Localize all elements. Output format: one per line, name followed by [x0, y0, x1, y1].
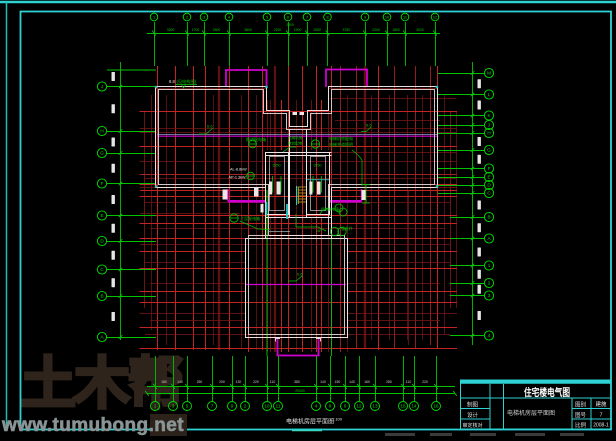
svg-text:16: 16	[433, 403, 439, 408]
svg-text:4: 4	[228, 15, 230, 19]
svg-text:2100: 2100	[274, 28, 282, 32]
svg-text:15: 15	[400, 403, 406, 408]
svg-text:6.6: 6.6	[366, 123, 372, 128]
svg-text:130: 130	[236, 380, 242, 384]
svg-text:G: G	[100, 150, 104, 155]
svg-text:b.6: b.6	[297, 272, 303, 277]
svg-text:2008-1: 2008-1	[593, 423, 609, 429]
svg-text:2: 2	[488, 280, 491, 285]
svg-text:建施: 建施	[595, 400, 607, 408]
svg-text:140: 140	[177, 380, 183, 384]
svg-text:2850: 2850	[314, 164, 322, 168]
svg-text:12: 12	[433, 15, 437, 19]
svg-text:住宅楼电气图: 住宅楼电气图	[524, 386, 570, 399]
svg-text:180: 180	[161, 380, 167, 384]
svg-text:3: 3	[203, 15, 205, 19]
svg-text:电梯机房层平面图: 电梯机房层平面图	[286, 418, 334, 426]
svg-text:14: 14	[411, 403, 417, 408]
svg-text:J: J	[488, 122, 490, 127]
svg-text:29400: 29400	[295, 389, 305, 393]
svg-text:1: 1	[488, 263, 491, 268]
svg-text:电梯机房: 电梯机房	[288, 135, 303, 140]
svg-text:280: 280	[386, 380, 392, 384]
svg-text:3: 3	[488, 293, 491, 298]
svg-text:220: 220	[253, 380, 259, 384]
svg-text:图别: 图别	[575, 401, 586, 409]
svg-text:140: 140	[320, 380, 326, 384]
svg-text:J: J	[101, 84, 103, 89]
svg-text:2400: 2400	[286, 23, 294, 27]
svg-text:250: 250	[197, 380, 203, 384]
svg-text:8: 8	[326, 15, 328, 19]
svg-text:E: E	[100, 213, 103, 218]
svg-text:L: L	[488, 92, 491, 97]
svg-text:AP-1 3kW: AP-1 3kW	[229, 176, 247, 180]
svg-text:3750: 3750	[342, 28, 350, 32]
svg-text:4: 4	[488, 333, 491, 338]
svg-text:2500: 2500	[213, 28, 221, 32]
svg-text:图号: 图号	[575, 411, 587, 419]
svg-text:2200: 2200	[372, 28, 380, 32]
svg-text:比例: 比例	[575, 421, 587, 429]
svg-text:(见结构图): (见结构图)	[177, 78, 197, 85]
svg-text:110: 110	[406, 380, 412, 384]
svg-text:电梯井道照明: 电梯井道照明	[329, 141, 353, 147]
svg-text:设计: 设计	[467, 411, 479, 419]
svg-text:1700: 1700	[192, 28, 200, 32]
svg-text:照明配电箱: 照明配电箱	[246, 136, 266, 142]
svg-text:6: 6	[287, 15, 289, 19]
svg-text:3800: 3800	[244, 28, 252, 32]
svg-text:8.8: 8.8	[169, 79, 175, 84]
svg-text:G: G	[487, 147, 491, 152]
svg-text:2: 2	[186, 15, 188, 19]
svg-text:140: 140	[349, 380, 355, 384]
svg-text:1: 1	[153, 15, 155, 19]
svg-text:11: 11	[403, 15, 407, 19]
svg-text:强电井: 强电井	[341, 226, 353, 231]
svg-text:1800: 1800	[392, 28, 400, 32]
svg-text:150: 150	[335, 380, 341, 384]
svg-text:10: 10	[264, 403, 270, 408]
svg-text:F: F	[101, 181, 104, 186]
svg-text:AL-8.8kW: AL-8.8kW	[230, 168, 247, 172]
svg-text:2850: 2850	[273, 164, 281, 168]
svg-text:110: 110	[270, 380, 276, 384]
svg-text:5: 5	[266, 15, 268, 19]
svg-text:380: 380	[294, 380, 300, 384]
svg-text:3000: 3000	[416, 28, 424, 32]
svg-text:电梯机房配电: 电梯机房配电	[329, 135, 353, 141]
svg-text:2050: 2050	[313, 28, 321, 32]
svg-text:电梯机房层平面图: 电梯机房层平面图	[507, 409, 555, 417]
svg-text:E: E	[487, 174, 490, 179]
svg-text:梯台配电: 梯台配电	[288, 141, 303, 146]
svg-text:AP: AP	[317, 229, 322, 233]
svg-text:B: B	[487, 214, 490, 219]
svg-text:H: H	[100, 128, 103, 133]
svg-text:1900: 1900	[294, 28, 302, 32]
svg-text:160: 160	[364, 380, 370, 384]
svg-text:1:100: 1:100	[332, 417, 343, 422]
svg-text:200: 200	[219, 380, 225, 384]
svg-text:3300: 3300	[167, 28, 175, 32]
svg-text:7: 7	[306, 15, 308, 19]
svg-text:10: 10	[385, 15, 389, 19]
svg-text:H: H	[487, 130, 490, 135]
svg-text:11: 11	[276, 403, 281, 408]
svg-text:制图: 制图	[467, 401, 479, 409]
svg-text:M: M	[487, 70, 491, 75]
svg-text:土木帮: 土木帮	[20, 352, 182, 415]
svg-text:B: B	[100, 293, 103, 298]
svg-text:220: 220	[422, 380, 428, 384]
svg-text:6.6: 6.6	[207, 124, 213, 129]
svg-text:F: F	[488, 166, 491, 171]
svg-text:7: 7	[599, 413, 602, 419]
svg-text:12: 12	[356, 403, 362, 408]
svg-text:www.tumubong.net: www.tumubong.net	[1, 415, 184, 436]
svg-text:审定核对: 审定核对	[463, 422, 483, 429]
svg-text:13: 13	[372, 403, 378, 408]
svg-text:9: 9	[364, 15, 366, 19]
svg-text:引至配电箱: 引至配电箱	[241, 216, 260, 221]
